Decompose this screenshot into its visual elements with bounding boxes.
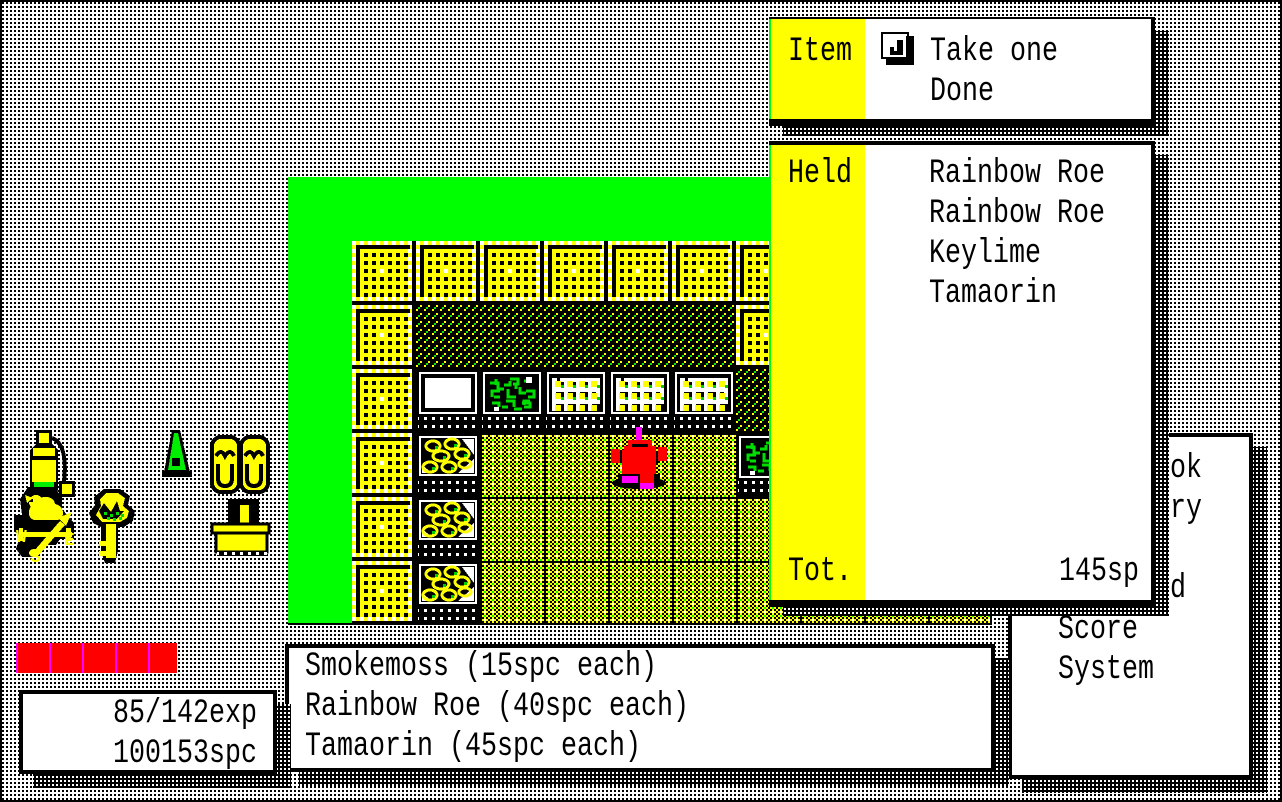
svg-text:Rainbow Roe: Rainbow Roe (929, 195, 1105, 233)
svg-text:System: System (1058, 651, 1154, 689)
svg-text:Done: Done (930, 73, 994, 111)
svg-text:Take one: Take one (930, 33, 1058, 71)
svg-text:Tamaorin: Tamaorin (929, 275, 1057, 313)
svg-text:S: S (30, 548, 41, 568)
svg-text:Rainbow Roe: Rainbow Roe (929, 155, 1105, 193)
svg-text:Tot.: Tot. (788, 553, 852, 591)
svg-text:Keylime: Keylime (929, 235, 1041, 273)
svg-text:Rainbow Roe (40spc each): Rainbow Roe (40spc each) (305, 688, 689, 726)
svg-text:Held: Held (788, 155, 852, 193)
svg-text:Item: Item (788, 33, 852, 71)
svg-text:145sp: 145sp (1059, 553, 1139, 591)
svg-text:Smokemoss (15spc each): Smokemoss (15spc each) (305, 648, 657, 686)
svg-text:100153spc: 100153spc (113, 735, 257, 773)
svg-text:Tamaorin (45spc each): Tamaorin (45spc each) (305, 728, 641, 766)
svg-text:E: E (64, 531, 75, 551)
svg-text:85/142exp: 85/142exp (113, 695, 257, 733)
svg-text:Score: Score (1058, 611, 1138, 649)
svg-text:W: W (16, 528, 27, 548)
